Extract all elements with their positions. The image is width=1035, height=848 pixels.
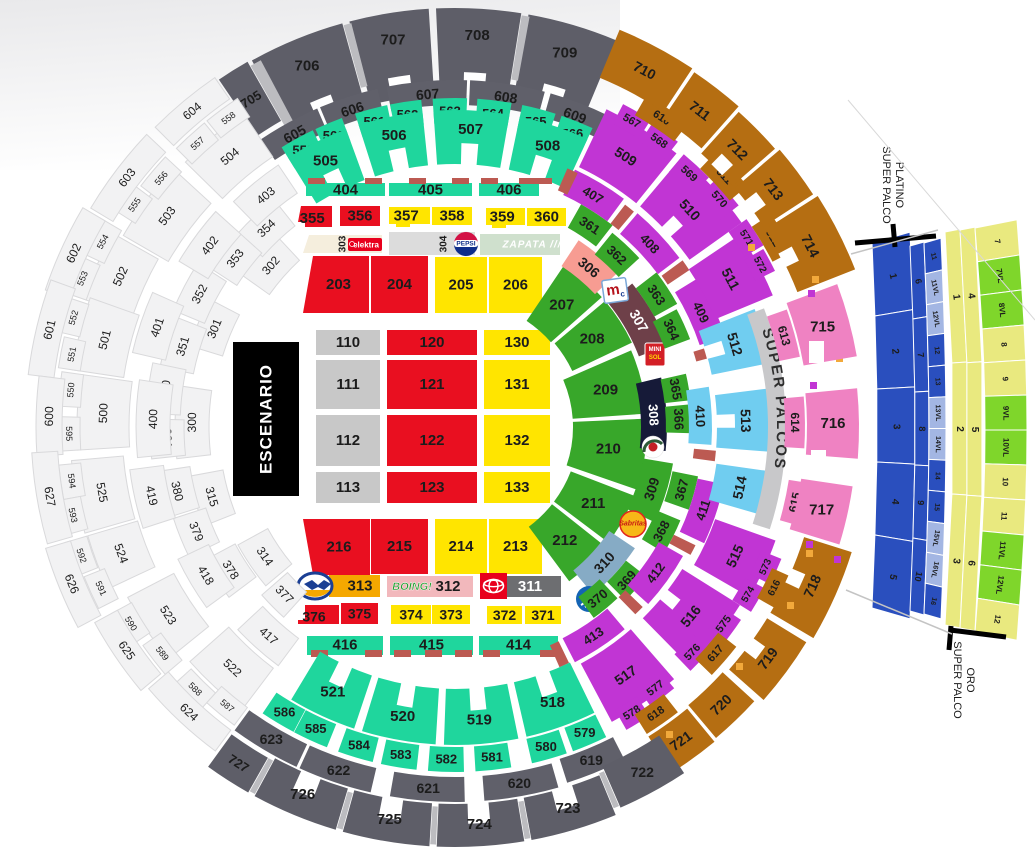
svg-text:132: 132 xyxy=(504,432,529,449)
svg-text:707: 707 xyxy=(380,31,405,48)
svg-text:619: 619 xyxy=(580,752,604,768)
svg-text:373: 373 xyxy=(439,607,463,623)
svg-text:PLATINO: PLATINO xyxy=(893,162,905,209)
svg-text:725: 725 xyxy=(377,811,402,828)
svg-text:579: 579 xyxy=(574,725,596,740)
svg-text:211: 211 xyxy=(581,495,605,512)
svg-text:elektra: elektra xyxy=(353,241,379,250)
svg-text:376: 376 xyxy=(302,608,326,624)
svg-text:726: 726 xyxy=(290,786,315,803)
svg-text:14VL: 14VL xyxy=(934,436,941,454)
svg-text:550: 550 xyxy=(65,382,76,398)
svg-text:203: 203 xyxy=(326,276,351,293)
svg-text:208: 208 xyxy=(580,330,605,347)
svg-text:508: 508 xyxy=(535,137,560,154)
svg-text:10: 10 xyxy=(1000,477,1009,487)
svg-text:206: 206 xyxy=(503,277,528,294)
svg-text:358: 358 xyxy=(439,208,464,225)
svg-text:622: 622 xyxy=(327,762,351,778)
svg-text:709: 709 xyxy=(552,44,577,61)
svg-text:513: 513 xyxy=(738,409,754,433)
svg-text:133: 133 xyxy=(504,479,529,496)
svg-text:120: 120 xyxy=(419,334,444,351)
svg-text:374: 374 xyxy=(399,607,423,623)
svg-text:500: 500 xyxy=(96,403,111,424)
svg-text:506: 506 xyxy=(382,127,407,144)
svg-text:585: 585 xyxy=(305,721,327,736)
svg-text:12: 12 xyxy=(932,346,940,355)
svg-text:110: 110 xyxy=(336,334,360,351)
svg-text:359: 359 xyxy=(490,209,515,226)
svg-text:216: 216 xyxy=(326,539,351,556)
svg-text:215: 215 xyxy=(387,538,412,555)
svg-text:375: 375 xyxy=(348,606,372,622)
svg-text:507: 507 xyxy=(458,121,483,138)
svg-text:304: 304 xyxy=(439,235,450,252)
svg-text:8VL: 8VL xyxy=(997,302,1008,318)
svg-text:13: 13 xyxy=(933,378,941,386)
svg-text:121: 121 xyxy=(419,376,444,393)
svg-text:9VL: 9VL xyxy=(1001,406,1010,421)
svg-text:581: 581 xyxy=(481,749,503,764)
svg-text:520: 520 xyxy=(390,708,415,725)
svg-text:312: 312 xyxy=(435,578,460,595)
svg-text:623: 623 xyxy=(260,731,284,747)
svg-text:366: 366 xyxy=(671,408,687,430)
svg-text:300: 300 xyxy=(185,412,199,433)
svg-text:11: 11 xyxy=(999,512,1009,522)
svg-text:708: 708 xyxy=(465,27,490,44)
svg-text:131: 131 xyxy=(504,376,529,393)
svg-text:MINI: MINI xyxy=(649,347,662,353)
svg-text:209: 209 xyxy=(593,382,618,399)
svg-text:3: 3 xyxy=(890,424,901,430)
svg-text:357: 357 xyxy=(394,208,419,225)
svg-text:210: 210 xyxy=(596,441,621,458)
svg-text:716: 716 xyxy=(820,415,845,432)
svg-text:717: 717 xyxy=(809,502,834,519)
svg-text:Sabritas: Sabritas xyxy=(619,521,647,528)
svg-text:2: 2 xyxy=(954,426,965,432)
svg-text:122: 122 xyxy=(419,432,444,449)
svg-text:406: 406 xyxy=(496,182,521,199)
svg-text:505: 505 xyxy=(313,152,338,169)
svg-text:594: 594 xyxy=(66,473,78,489)
svg-text:519: 519 xyxy=(467,712,492,729)
svg-text:518: 518 xyxy=(540,694,565,711)
svg-text:ZAPATA ///: ZAPATA /// xyxy=(501,240,561,251)
svg-text:15: 15 xyxy=(932,503,940,512)
svg-text:SOL: SOL xyxy=(649,355,662,361)
svg-text:722: 722 xyxy=(631,764,655,780)
svg-text:355: 355 xyxy=(300,210,325,227)
svg-text:308: 308 xyxy=(645,404,661,427)
svg-text:582: 582 xyxy=(435,751,457,766)
svg-text:205: 205 xyxy=(448,277,473,294)
svg-text:584: 584 xyxy=(348,737,370,752)
svg-text:ESCENARIO: ESCENARIO xyxy=(257,364,276,474)
svg-text:111: 111 xyxy=(336,376,359,393)
svg-text:724: 724 xyxy=(467,816,493,833)
svg-text:371: 371 xyxy=(531,607,555,623)
svg-text:130: 130 xyxy=(504,334,529,351)
svg-text:SUPER PALCO: SUPER PALCO xyxy=(951,641,963,719)
svg-text:620: 620 xyxy=(508,775,532,791)
svg-text:580: 580 xyxy=(535,739,557,754)
svg-text:583: 583 xyxy=(390,747,412,762)
svg-text:360: 360 xyxy=(534,209,559,226)
svg-text:311: 311 xyxy=(518,578,542,595)
svg-text:586: 586 xyxy=(274,704,296,719)
svg-text:207: 207 xyxy=(549,297,574,314)
svg-text:404: 404 xyxy=(333,182,359,199)
svg-text:614: 614 xyxy=(788,412,802,433)
svg-text:356: 356 xyxy=(347,208,372,225)
svg-text:10VL: 10VL xyxy=(1001,438,1010,457)
svg-text:400: 400 xyxy=(146,409,161,430)
svg-text:123: 123 xyxy=(419,479,444,496)
svg-text:112: 112 xyxy=(336,432,360,449)
svg-text:706: 706 xyxy=(294,58,319,75)
svg-text:5: 5 xyxy=(969,427,980,433)
svg-text:113: 113 xyxy=(336,479,360,496)
svg-text:SUPER PALCO: SUPER PALCO xyxy=(880,146,892,224)
svg-text:212: 212 xyxy=(552,532,577,549)
svg-text:214: 214 xyxy=(448,538,474,555)
svg-text:ORO: ORO xyxy=(964,667,976,693)
svg-text:14: 14 xyxy=(933,472,941,480)
svg-text:303: 303 xyxy=(338,235,349,252)
svg-text:595: 595 xyxy=(64,426,74,441)
svg-text:621: 621 xyxy=(417,780,441,796)
svg-text:204: 204 xyxy=(387,276,413,293)
svg-text:715: 715 xyxy=(810,318,835,335)
svg-text:600: 600 xyxy=(42,406,57,427)
svg-text:13VL: 13VL xyxy=(934,405,941,423)
svg-text:372: 372 xyxy=(493,607,517,623)
svg-text:8: 8 xyxy=(917,426,927,431)
svg-text:416: 416 xyxy=(332,637,357,654)
svg-text:213: 213 xyxy=(503,538,528,555)
svg-text:414: 414 xyxy=(506,637,532,654)
svg-text:PEPSI: PEPSI xyxy=(456,241,475,248)
svg-text:723: 723 xyxy=(555,800,580,817)
svg-text:m: m xyxy=(605,281,621,300)
svg-text:521: 521 xyxy=(320,684,345,701)
svg-text:313: 313 xyxy=(347,578,372,595)
svg-text:BOING!: BOING! xyxy=(392,581,432,593)
svg-text:405: 405 xyxy=(418,182,443,199)
svg-text:410: 410 xyxy=(692,405,708,427)
